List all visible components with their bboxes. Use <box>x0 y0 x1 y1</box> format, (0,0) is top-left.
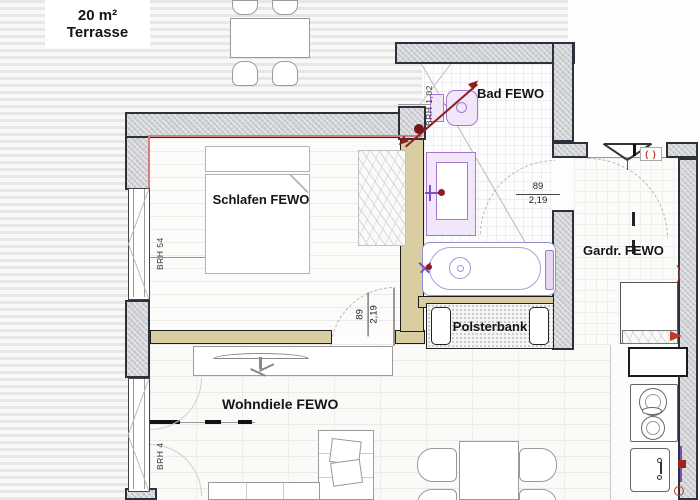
sofa-seam <box>283 483 284 499</box>
entry-triangle-icon <box>604 143 651 145</box>
bathtub-inner <box>429 247 541 290</box>
washbasin-drain-dot <box>438 189 445 196</box>
sink-faucet-dot <box>657 458 662 463</box>
dining-chair <box>519 448 557 482</box>
wall-entry-left-stub <box>552 142 588 158</box>
tv-sideboard <box>193 346 393 376</box>
heating-line-top <box>148 135 422 137</box>
wall-left-upper <box>125 136 150 190</box>
bench-label: Polsterbank <box>453 319 527 334</box>
bathtub-drain-dot <box>457 265 464 272</box>
dim-dash <box>205 420 221 424</box>
bedroom-window-sill-label: BRH 54 <box>155 218 165 270</box>
terrace-decking-topright <box>422 0 568 46</box>
dim-dash <box>238 420 252 424</box>
plumbing-valve-mark <box>678 460 686 468</box>
bathtub <box>422 242 556 296</box>
terrace-chair <box>272 61 298 86</box>
heating-line-left <box>148 137 150 189</box>
living-window-sill-label: BRH 4 <box>155 420 165 470</box>
burner <box>641 416 665 440</box>
window-frame-line <box>133 379 134 489</box>
entry-triangle-stem <box>627 158 628 170</box>
bath-door-height: 2,19 <box>529 196 548 207</box>
window-frame-line <box>133 189 134 297</box>
wardrobe-label: Gardr. FEWO <box>583 243 664 258</box>
tv-stand <box>259 357 262 369</box>
bedroom-door-dimension: 89 2,19 <box>356 292 381 336</box>
sofa-pillow <box>330 459 363 487</box>
wardrobe-hatch <box>358 150 406 246</box>
wardrobe-dash-mark <box>632 212 635 226</box>
bath-door-dimension: 89 2,19 <box>516 182 560 207</box>
wall-bath-top <box>395 42 575 64</box>
bedroom-door-width: 89 <box>356 309 367 320</box>
bathtub-faucet-dot <box>426 264 432 270</box>
bench-armrest <box>431 307 451 345</box>
wall-left-middle <box>125 300 150 378</box>
dining-chair <box>417 489 457 500</box>
terrace-chair <box>272 0 298 15</box>
dining-chair <box>417 448 457 482</box>
kitchen-counter <box>628 347 688 377</box>
wall-bath-right-upper <box>552 42 574 142</box>
cooktop <box>630 384 678 442</box>
terrace-area-text: 20 m² <box>78 7 117 24</box>
bathtub-drain <box>449 257 471 279</box>
floor-plan: 20 m² Terrasse <box>0 0 700 500</box>
bedroom-label: Schlafen FEWO <box>200 192 322 207</box>
burner-inner <box>646 421 660 435</box>
bath-door-width: 89 <box>533 182 544 193</box>
cooktop-oval <box>642 407 662 415</box>
bedroom-window <box>128 188 150 300</box>
toilet-drain-icon <box>456 102 467 113</box>
wall-entry-right-stub <box>666 142 698 158</box>
bathtub-panel <box>545 250 554 290</box>
window-frame-line <box>144 379 145 489</box>
red-arrow-icon <box>670 331 682 341</box>
terrace-name-text: Terrasse <box>67 24 128 41</box>
bath-window-sill-label: BRH 1,02 <box>424 66 434 126</box>
sink-faucet-dot <box>657 475 662 480</box>
drain-junction-dot <box>414 124 424 134</box>
window-frame-line <box>144 189 145 297</box>
bench-armrest <box>529 307 549 345</box>
terrace-chair <box>232 0 258 15</box>
bedroom-door-height: 2,19 <box>370 305 381 324</box>
vent-icon: ( ) <box>645 149 657 159</box>
terrace-table <box>230 18 310 58</box>
terrace-chair <box>232 61 258 86</box>
bed-fold-corner <box>290 175 308 193</box>
wall-bedroom-bottom <box>150 330 332 344</box>
living-label: Wohndiele FEWO <box>222 396 338 412</box>
sink-faucet-icon <box>660 462 662 474</box>
washbasin-faucet-icon <box>429 185 431 201</box>
kitchen-sink <box>630 448 670 492</box>
bath-label: Bad FEWO <box>477 86 544 101</box>
plumbing-ring-mark <box>674 486 684 496</box>
dining-table <box>459 441 519 500</box>
red-arc-mark <box>664 262 680 286</box>
vent-icon-box: ( ) <box>640 147 662 161</box>
entry-triangle-tick <box>633 144 636 156</box>
sofa-seam <box>246 483 247 499</box>
sofa-bench <box>208 482 320 500</box>
terrace-label-box: 20 m² Terrasse <box>45 0 150 48</box>
terrace-decking-left <box>0 0 130 500</box>
living-window <box>128 378 150 492</box>
bed-headboard <box>205 146 310 172</box>
wall-bedroom-bottom-right <box>395 330 425 344</box>
